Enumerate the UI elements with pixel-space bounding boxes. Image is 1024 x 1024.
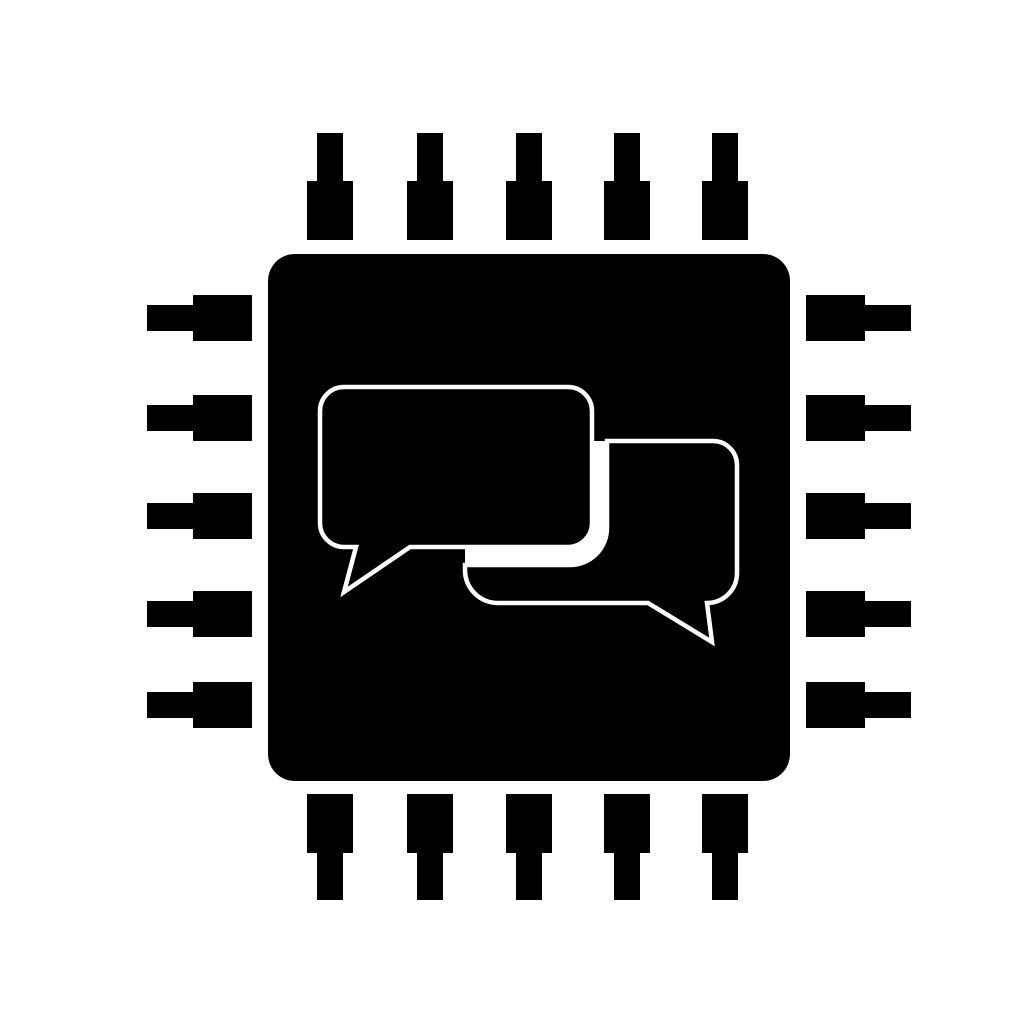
chip-pin-top-2-narrow xyxy=(417,133,443,181)
chip-pin-bottom-1-wide xyxy=(307,794,353,853)
chip-pin-top-4-wide xyxy=(604,181,650,240)
chip-pin-bottom-5-wide xyxy=(702,794,748,853)
chip-pin-left-2-narrow xyxy=(147,405,193,431)
chip-pin-top-4-narrow xyxy=(614,133,640,181)
chip-pin-left-3-wide xyxy=(193,493,252,539)
chip-pin-bottom-2-wide xyxy=(407,794,453,853)
chip-pin-left-3-narrow xyxy=(147,503,193,529)
chip-pin-right-3-wide xyxy=(806,493,865,539)
chip-pin-top-2-wide xyxy=(407,181,453,240)
chip-pin-top-5-wide xyxy=(702,181,748,240)
chip-pin-right-3-narrow xyxy=(865,503,911,529)
chip-pin-right-4-narrow xyxy=(865,601,911,627)
chip-pin-left-2-wide xyxy=(193,395,252,441)
cpu-chat-icon xyxy=(0,0,1024,1024)
chip-pin-right-1-narrow xyxy=(865,305,911,331)
chip-pin-top-3-narrow xyxy=(516,133,542,181)
icon-canvas xyxy=(0,0,1024,1024)
chip-pin-right-2-narrow xyxy=(865,405,911,431)
chip-pin-top-1-wide xyxy=(307,181,353,240)
chip-pin-right-5-narrow xyxy=(865,692,911,718)
chip-pin-bottom-3-wide xyxy=(506,794,552,853)
chip-pin-left-4-narrow xyxy=(147,601,193,627)
chip-pin-right-4-wide xyxy=(806,591,865,637)
chip-pin-bottom-5-narrow xyxy=(712,853,738,900)
chip-pin-left-1-wide xyxy=(193,295,252,341)
chip-pin-right-1-wide xyxy=(806,295,865,341)
chip-pin-left-1-narrow xyxy=(147,305,193,331)
chip-pin-left-5-wide xyxy=(193,682,252,728)
chip-pin-bottom-4-narrow xyxy=(614,853,640,900)
chip-pin-top-3-wide xyxy=(506,181,552,240)
chip-pin-bottom-3-narrow xyxy=(516,853,542,900)
chip-body xyxy=(268,254,790,781)
chip-pin-top-5-narrow xyxy=(712,133,738,181)
chip-pin-bottom-1-narrow xyxy=(317,853,343,900)
chip-pin-right-2-wide xyxy=(806,395,865,441)
chip-pin-bottom-4-wide xyxy=(604,794,650,853)
chip-pin-right-5-wide xyxy=(806,682,865,728)
chip-pin-left-4-wide xyxy=(193,591,252,637)
chip-pin-bottom-2-narrow xyxy=(417,853,443,900)
chip-pin-top-1-narrow xyxy=(317,133,343,181)
chip-pin-left-5-narrow xyxy=(147,692,193,718)
